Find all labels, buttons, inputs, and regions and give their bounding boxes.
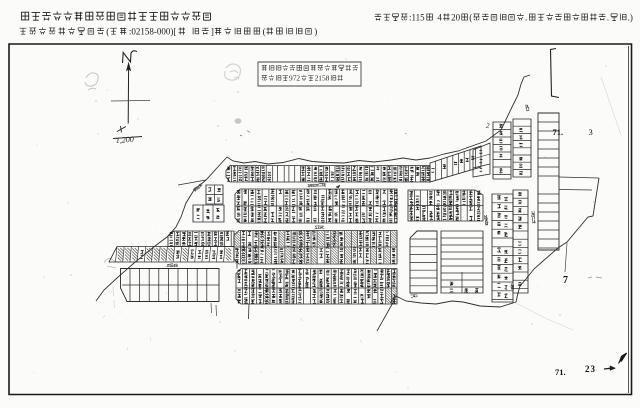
svg-text:4: 4 bbox=[437, 12, 442, 22]
svg-text:]: ] bbox=[211, 26, 214, 36]
svg-text:71.: 71. bbox=[553, 127, 564, 137]
svg-text::02158-000)[: :02158-000)[ bbox=[129, 26, 177, 36]
svg-text:(: ( bbox=[106, 26, 109, 36]
svg-text:2: 2 bbox=[486, 122, 490, 130]
svg-text:2158: 2158 bbox=[315, 74, 330, 83]
svg-text:71.: 71. bbox=[555, 367, 566, 377]
svg-text:23: 23 bbox=[585, 364, 596, 374]
svg-text:3: 3 bbox=[589, 127, 593, 137]
svg-text:.: . bbox=[525, 12, 527, 22]
svg-text:(: ( bbox=[263, 26, 266, 36]
svg-text:(: ( bbox=[469, 12, 472, 22]
svg-text:20: 20 bbox=[451, 12, 461, 22]
svg-text:.): .) bbox=[628, 12, 633, 22]
svg-text:972: 972 bbox=[289, 74, 300, 83]
svg-text:.: . bbox=[607, 12, 609, 22]
svg-text:): ) bbox=[314, 26, 317, 36]
svg-text:7: 7 bbox=[563, 275, 568, 286]
svg-text::115: :115 bbox=[409, 12, 425, 22]
svg-text:1,200: 1,200 bbox=[116, 135, 135, 145]
